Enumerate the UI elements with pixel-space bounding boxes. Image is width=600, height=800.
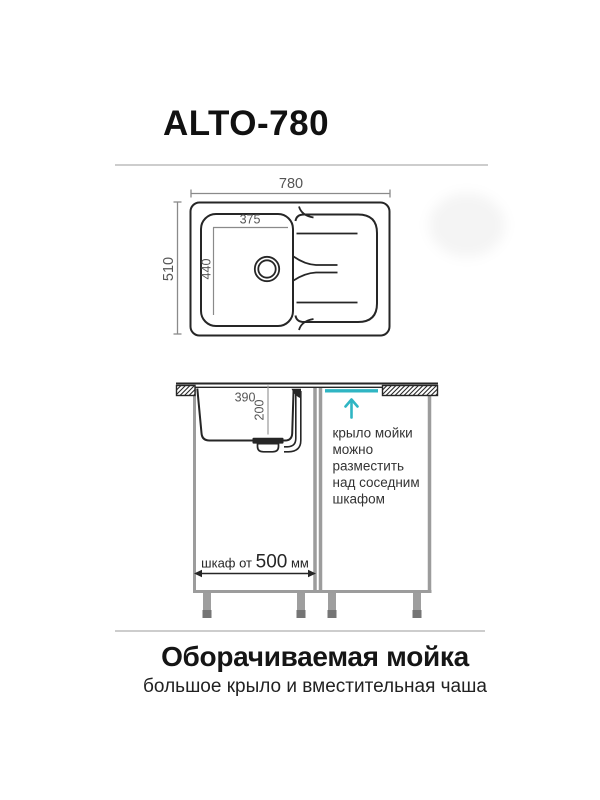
footer-subheading: большое крыло и вместительная чаша xyxy=(105,676,525,698)
dimension-510: 510 xyxy=(161,202,182,334)
dimension-cabinet-500: шкаф от 500 мм xyxy=(194,552,316,578)
footer-heading: Оборачиваемая мойка xyxy=(105,641,525,673)
note-line-4: над соседним xyxy=(333,475,420,490)
bottom-divider-line xyxy=(115,630,485,632)
drain-flange xyxy=(253,438,284,444)
arrow-up-icon xyxy=(346,400,358,418)
note-line-1: крыло мойки xyxy=(333,426,413,441)
note-line-3: разместить xyxy=(333,459,405,474)
cabinet-legs xyxy=(203,593,422,618)
note-line-5: шкафом xyxy=(333,492,385,507)
wing-note-text: крыло мойки можно разместить над соседни… xyxy=(333,426,420,507)
dim-label-440: 440 xyxy=(200,259,214,280)
drain-hole-icon xyxy=(255,257,279,281)
top-view-drawing: 780 510 375 440 xyxy=(161,176,390,336)
countertop-hatch-left xyxy=(177,386,196,396)
background-shadow xyxy=(429,193,505,257)
cabinet-dim-label: шкаф от 500 мм xyxy=(201,552,309,573)
dim-label-780: 780 xyxy=(279,176,303,192)
dim-label-510: 510 xyxy=(161,257,177,281)
drain-cup xyxy=(258,444,279,452)
countertop-hatch-right xyxy=(383,386,438,396)
dim-label-375: 375 xyxy=(240,213,261,227)
dim-label-200: 200 xyxy=(253,400,267,421)
side-view-drawing: 390 200 крыло мойки можно разместить над… xyxy=(176,384,438,619)
dimension-780: 780 xyxy=(191,176,390,198)
note-line-2: можно xyxy=(333,442,374,457)
footer: Оборачиваемая мойка большое крыло и вмес… xyxy=(105,641,525,698)
